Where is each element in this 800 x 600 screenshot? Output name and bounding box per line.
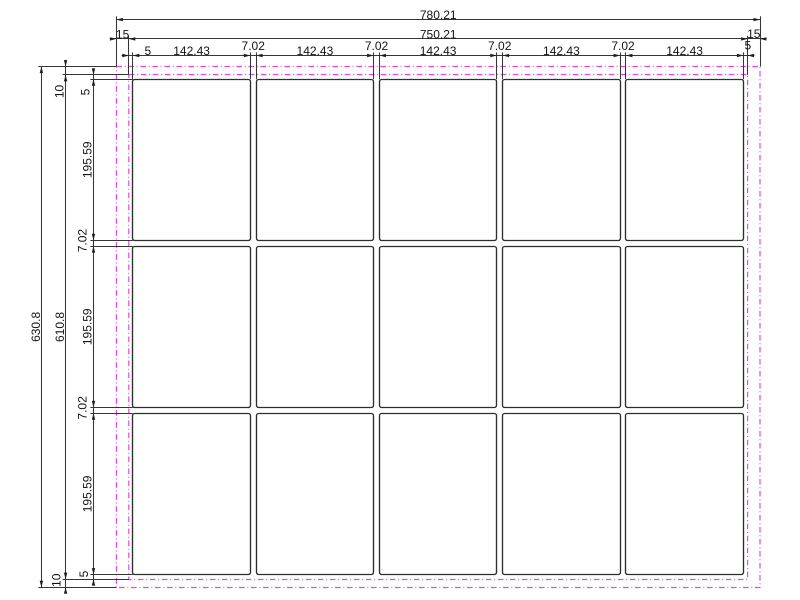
svg-text:7.02: 7.02 (76, 396, 90, 420)
svg-text:142.43: 142.43 (666, 44, 703, 58)
svg-text:142.43: 142.43 (543, 44, 580, 58)
svg-text:142.43: 142.43 (297, 44, 334, 58)
svg-text:5: 5 (745, 39, 752, 53)
svg-text:195.59: 195.59 (80, 308, 94, 345)
svg-text:10: 10 (53, 85, 67, 99)
svg-text:142.43: 142.43 (173, 44, 210, 58)
svg-text:5: 5 (145, 44, 152, 58)
svg-text:7.02: 7.02 (242, 39, 266, 53)
svg-text:15: 15 (116, 27, 130, 41)
svg-text:630.8: 630.8 (29, 312, 43, 342)
svg-text:610.8: 610.8 (53, 312, 67, 342)
svg-text:10: 10 (50, 573, 64, 587)
svg-text:750.21: 750.21 (420, 27, 457, 41)
svg-text:7.02: 7.02 (611, 39, 635, 53)
svg-text:7.02: 7.02 (365, 39, 389, 53)
svg-text:195.59: 195.59 (80, 141, 94, 178)
svg-text:195.59: 195.59 (80, 475, 94, 512)
svg-text:7.02: 7.02 (76, 229, 90, 253)
svg-text:780.21: 780.21 (420, 8, 457, 22)
svg-text:5: 5 (78, 88, 92, 95)
svg-text:142.43: 142.43 (420, 44, 457, 58)
svg-text:7.02: 7.02 (488, 39, 512, 53)
svg-text:5: 5 (77, 570, 91, 577)
